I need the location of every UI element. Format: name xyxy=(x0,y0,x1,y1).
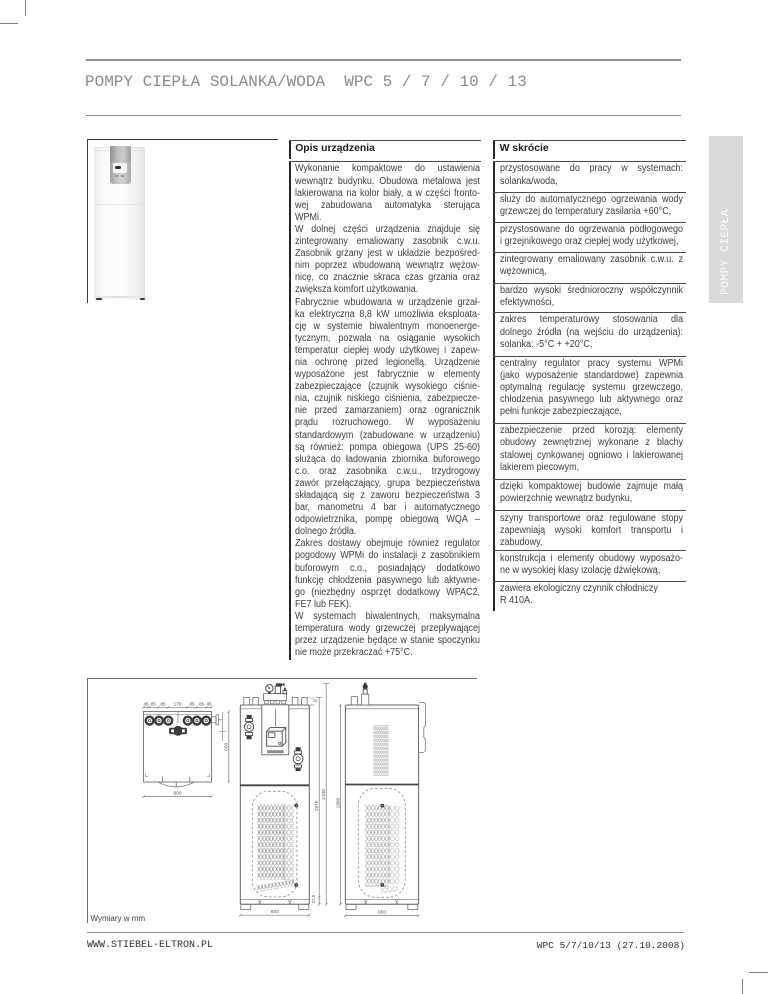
svg-text:2100: 2100 xyxy=(321,789,327,800)
svg-text:650: 650 xyxy=(378,909,386,915)
svg-text:600: 600 xyxy=(173,790,181,796)
svg-text:85: 85 xyxy=(151,702,157,707)
svg-text:650: 650 xyxy=(223,742,229,750)
svg-text:45: 45 xyxy=(206,702,212,707)
svg-text:45: 45 xyxy=(143,702,149,707)
svg-text:35: 35 xyxy=(313,699,317,703)
svg-text:85: 85 xyxy=(199,702,205,707)
svg-text:22,5: 22,5 xyxy=(311,894,316,903)
svg-text:85: 85 xyxy=(189,702,195,707)
svg-text:1975: 1975 xyxy=(314,800,320,811)
svg-text:600: 600 xyxy=(271,909,279,915)
svg-text:85: 85 xyxy=(160,702,166,707)
svg-text:1890: 1890 xyxy=(336,797,342,808)
svg-text:170: 170 xyxy=(174,702,182,707)
